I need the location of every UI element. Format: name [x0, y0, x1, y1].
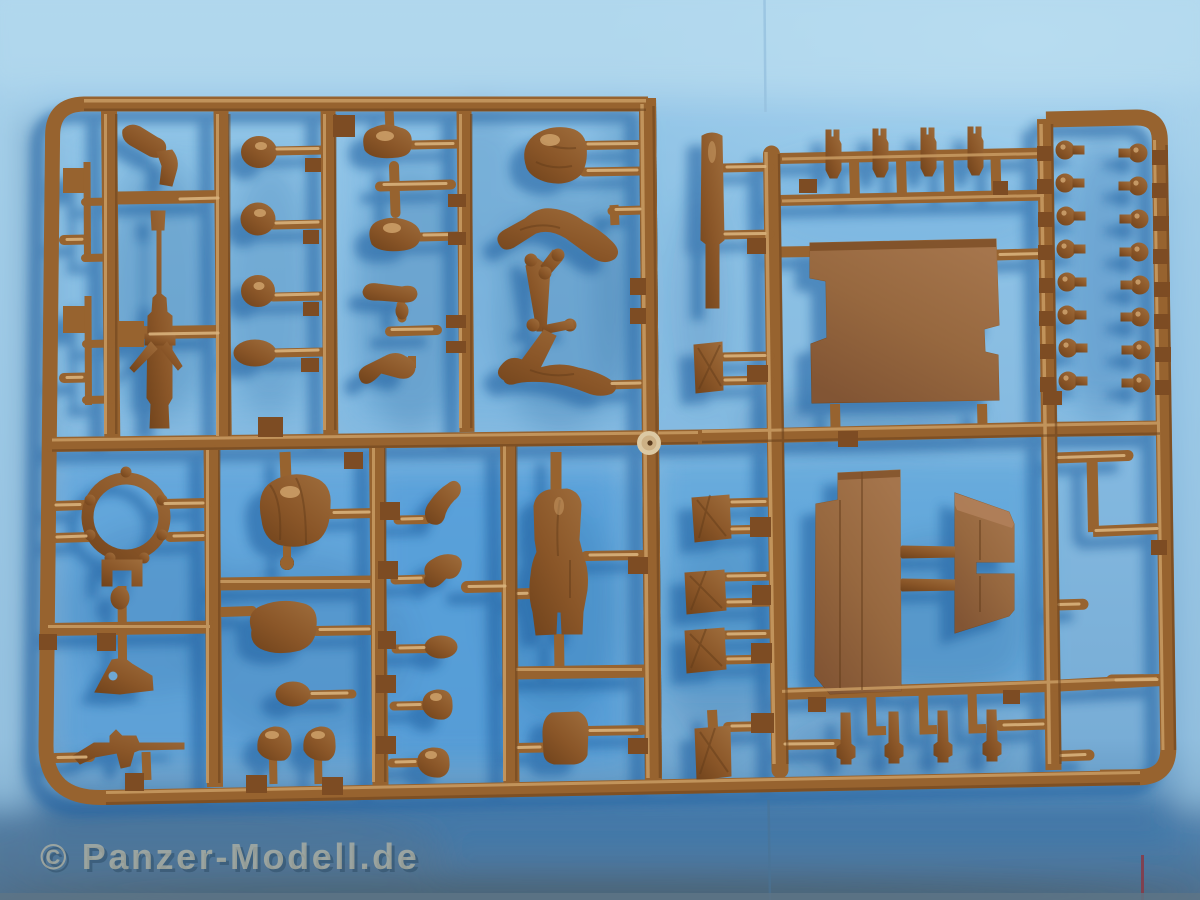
svg-text:© Panzer-Modell.de: © Panzer-Modell.de	[40, 836, 419, 877]
